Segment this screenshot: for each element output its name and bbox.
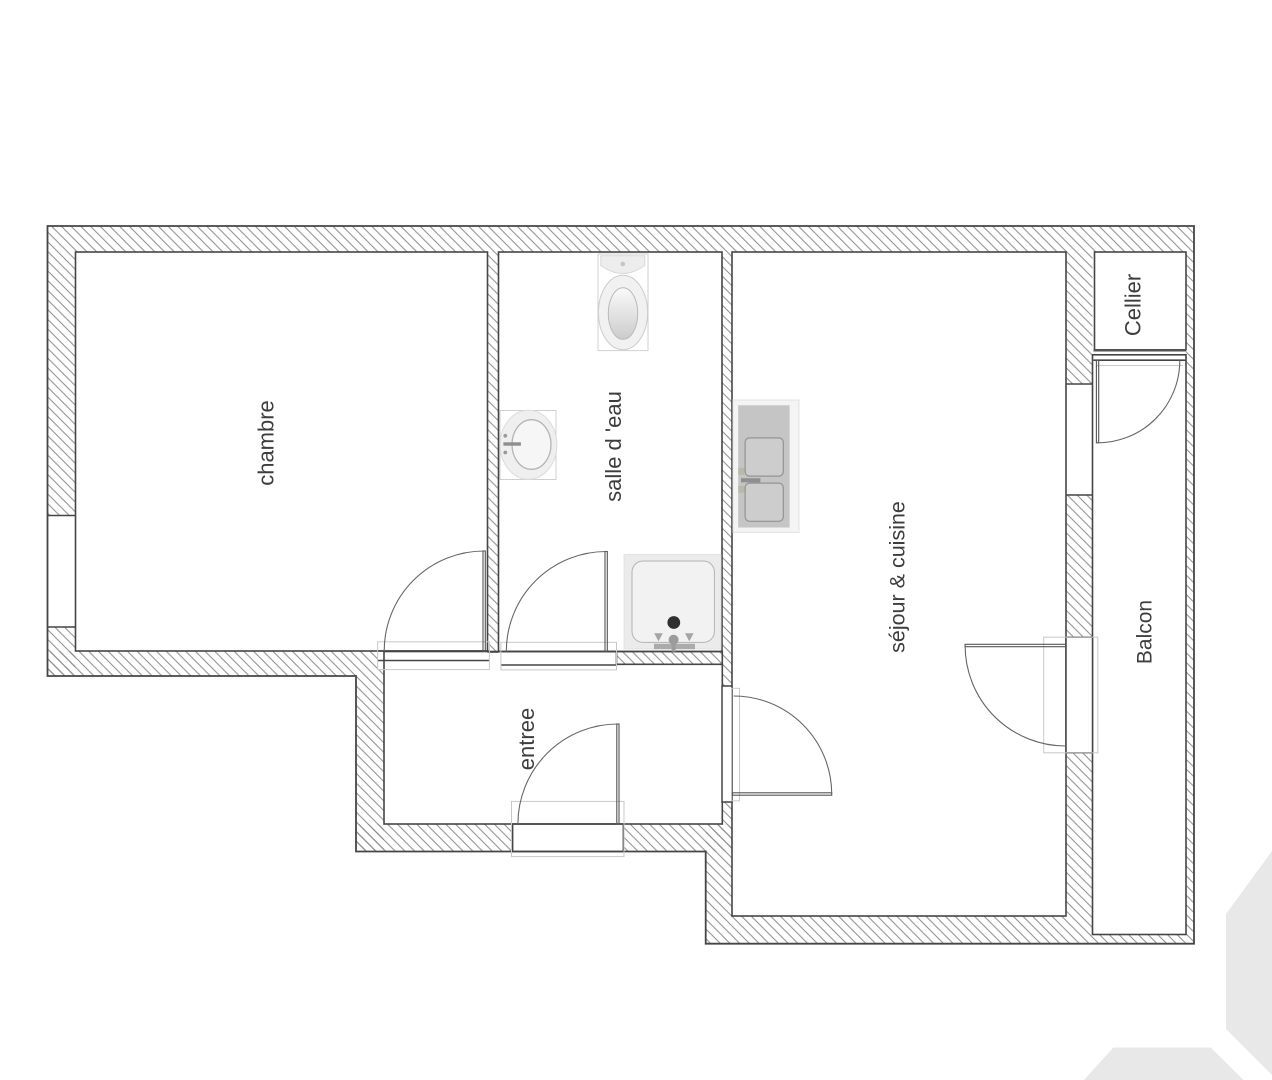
svg-text:salle d 'eau: salle d 'eau (601, 391, 626, 502)
svg-text:séjour & cuisine: séjour & cuisine (886, 501, 910, 653)
svg-text:Balcon: Balcon (1133, 600, 1156, 664)
svg-text:Cellier: Cellier (1121, 274, 1146, 336)
svg-text:entree: entree (514, 708, 539, 770)
svg-text:chambre: chambre (254, 400, 279, 486)
